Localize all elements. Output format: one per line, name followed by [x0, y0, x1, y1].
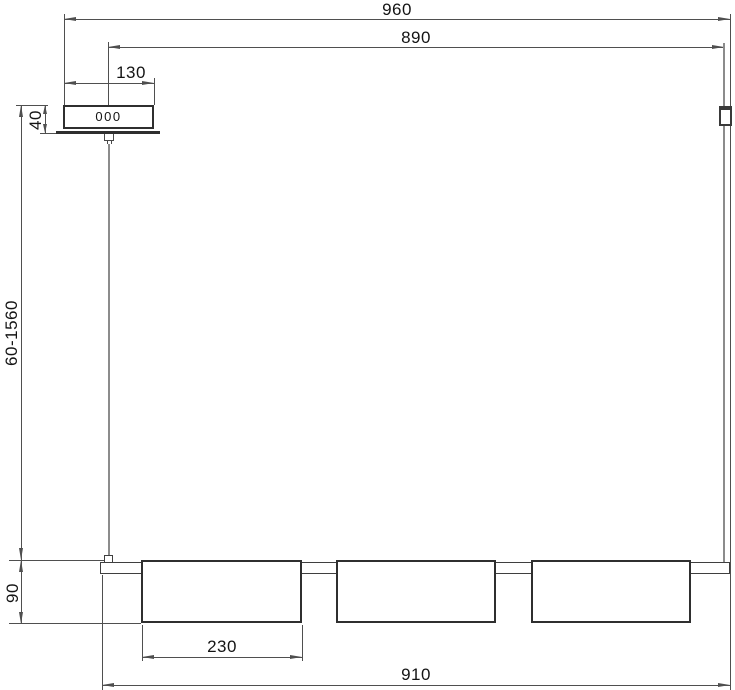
arrowhead-90-bottom [19, 612, 23, 624]
dim-label-canopy-height: 40 [27, 100, 45, 140]
ext-line-shade-bottom [9, 623, 141, 624]
dim-line-suspension-span [108, 47, 724, 48]
canopy-marking: 000 [65, 107, 152, 127]
cable-gland-neck [107, 141, 112, 144]
arrowhead-910-left [102, 683, 114, 687]
ext-line-canopy-left [64, 14, 65, 105]
arrowhead-drop-bottom [19, 548, 23, 560]
dim-line-shade-width [142, 657, 302, 658]
ext-line-bar-top [9, 560, 104, 561]
cable-connector-left [104, 555, 113, 563]
arrowhead-960-right [718, 17, 730, 21]
drawing-canvas: 000 960 890 130 230 910 40 60-1560 90 [0, 0, 735, 690]
dim-label-bar-length: 910 [366, 666, 466, 684]
lamp-shade-3 [531, 560, 691, 623]
dim-label-body-height: 90 [4, 573, 22, 613]
cable-gland [104, 134, 114, 141]
dim-line-suspension-length [21, 105, 22, 560]
dim-line-bar-length [102, 685, 730, 686]
ext-line-shade1-right [302, 625, 303, 661]
arrowhead-230-left [142, 655, 154, 659]
arrowhead-890-left [108, 45, 120, 49]
arrowhead-130-left [64, 81, 76, 85]
dim-line-overall-width [64, 19, 730, 20]
arrowhead-910-right [718, 683, 730, 687]
dim-label-canopy-width: 130 [81, 64, 181, 82]
dim-label-shade-width: 230 [172, 638, 272, 656]
dim-line-canopy-width [64, 83, 154, 84]
arrowhead-230-right [290, 655, 302, 659]
arrowhead-90-top [19, 560, 23, 572]
dim-label-overall-width: 960 [347, 1, 447, 19]
lamp-shade-2 [336, 560, 496, 623]
arrowhead-drop-top [19, 105, 23, 117]
dim-label-suspension-length: 60-1560 [3, 298, 21, 368]
ext-line-canopy-right [154, 78, 155, 105]
dim-label-suspension-span: 890 [366, 29, 466, 47]
suspension-cable-left [108, 144, 110, 556]
arrowhead-960-left [64, 17, 76, 21]
cable-adjuster [719, 106, 732, 126]
ext-line-bar-left [102, 575, 103, 690]
lamp-shade-1 [141, 560, 302, 623]
ceiling-canopy: 000 [63, 105, 154, 129]
